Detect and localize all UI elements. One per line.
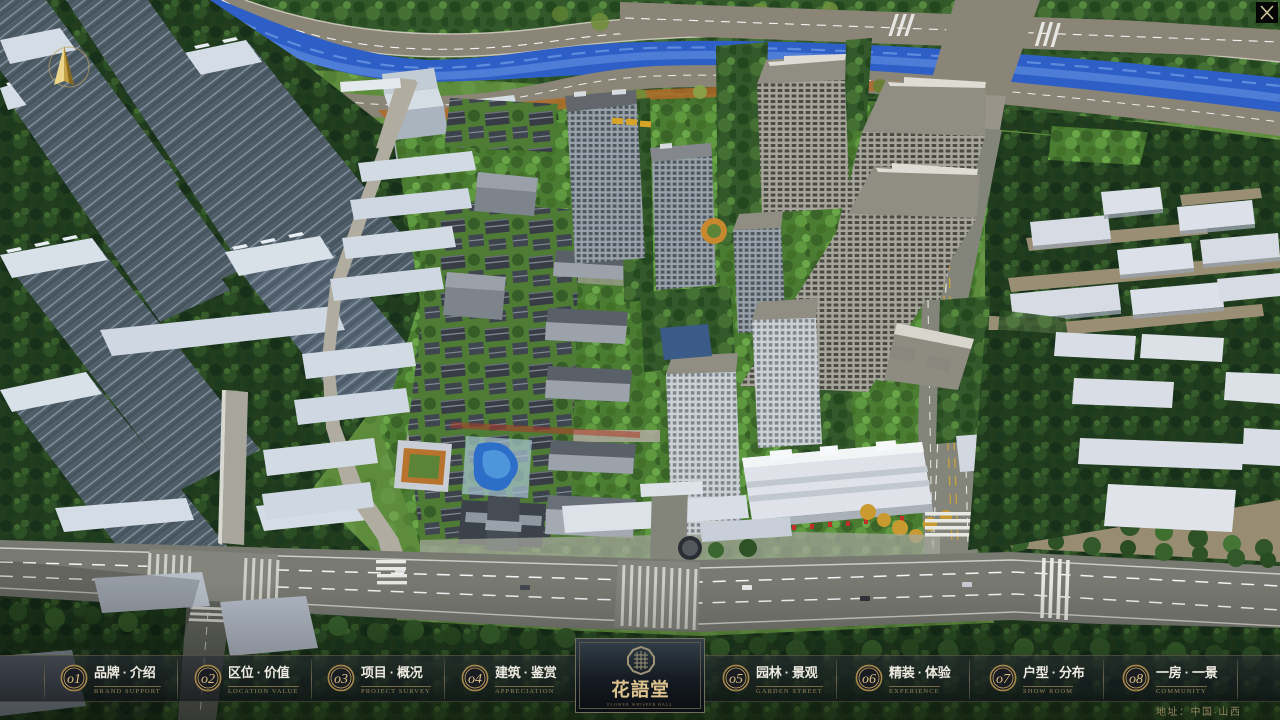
svg-text:o6: o6 — [862, 672, 876, 687]
svg-text:o5: o5 — [729, 672, 743, 687]
svg-text:o2: o2 — [201, 672, 215, 687]
svg-text:o1: o1 — [67, 672, 81, 687]
svg-text:o7: o7 — [996, 672, 1011, 687]
svg-text:o8: o8 — [1129, 672, 1143, 687]
svg-text:o4: o4 — [468, 672, 482, 687]
svg-text:o3: o3 — [334, 672, 348, 687]
